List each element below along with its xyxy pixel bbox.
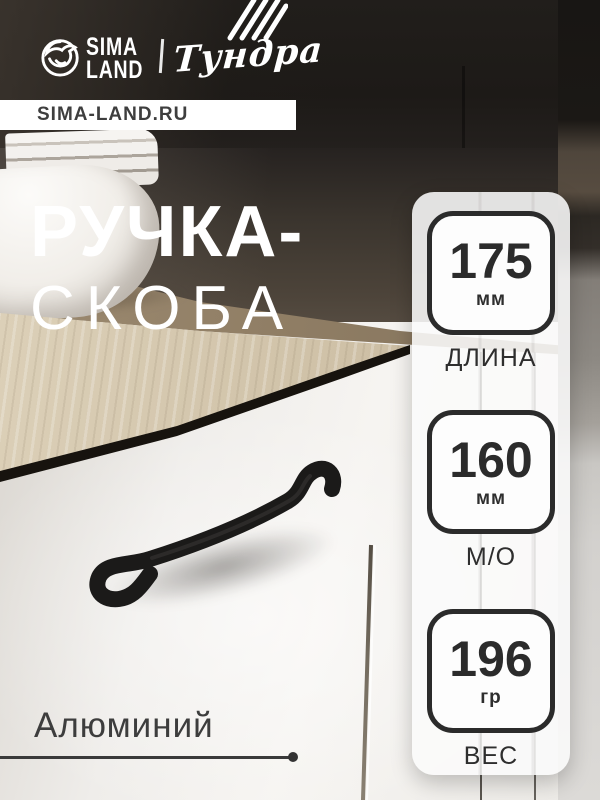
spec-weight-label: ВЕС (464, 742, 518, 771)
specs-panel: 175 мм ДЛИНА 160 мм М/О 196 гр ВЕС (412, 192, 570, 775)
product-title-line1: РУЧКА- (30, 196, 304, 268)
spec-hole-spacing-value: 160 (449, 435, 532, 485)
spec-weight-unit: гр (480, 687, 502, 709)
product-card: SIMA LAND Тундра SIMA-LAND.RU РУЧКА- СКО… (0, 0, 600, 800)
spec-hole-spacing-badge: 160 мм (427, 410, 555, 534)
spec-length-unit: мм (476, 289, 506, 311)
product-title-line2: СКОБА (30, 278, 304, 340)
spec-hole-spacing-label: М/О (466, 543, 516, 572)
material-label: Алюминий (34, 706, 214, 746)
sima-land-wordmark: SIMA LAND (86, 36, 143, 82)
spec-length-badge: 175 мм (427, 211, 555, 335)
website-bar: SIMA-LAND.RU (0, 100, 296, 130)
spec-weight-badge: 196 гр (427, 609, 555, 733)
spec-weight-value: 196 (449, 634, 532, 684)
spec-length: 175 мм ДЛИНА (427, 211, 555, 373)
material-underline-dot (288, 752, 298, 762)
sima-land-bird-logo-icon (40, 32, 82, 80)
spec-length-label: ДЛИНА (445, 344, 536, 373)
website-url: SIMA-LAND.RU (37, 104, 188, 126)
spec-length-value: 175 (449, 236, 532, 286)
sima-land-wordmark-line2: LAND (86, 59, 143, 82)
material-underline (0, 756, 292, 759)
spec-weight: 196 гр ВЕС (427, 609, 555, 771)
product-title: РУЧКА- СКОБА (30, 196, 304, 340)
spec-hole-spacing-unit: мм (476, 488, 506, 510)
spec-hole-spacing: 160 мм М/О (427, 410, 555, 572)
